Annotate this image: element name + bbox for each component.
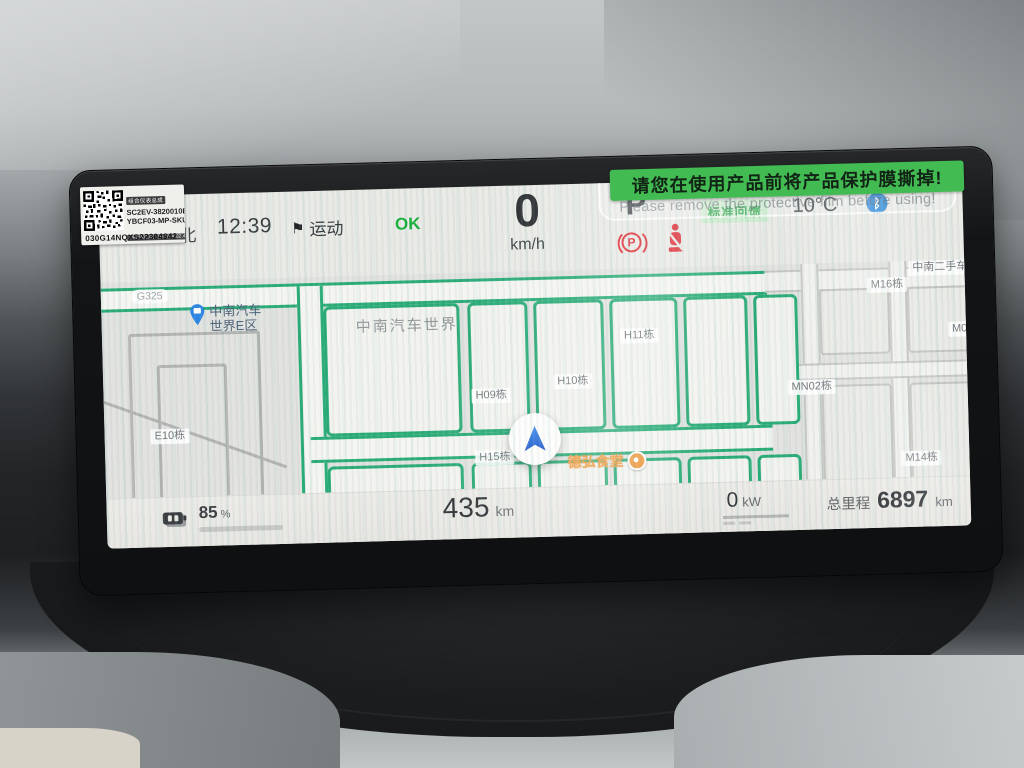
speed-unit: km/h (491, 235, 563, 255)
map-building (909, 381, 970, 481)
film-notice-chinese: 请您在使用产品前将产品保护膜撕掉! (631, 163, 943, 197)
map-building (907, 285, 970, 353)
map-building (819, 287, 891, 355)
map-building (533, 299, 606, 431)
poi-label: 中南汽车 世界E区 (209, 302, 262, 333)
vehicle-position-marker (508, 412, 561, 465)
seat-corner (0, 728, 140, 768)
power-meter-line (723, 514, 789, 519)
bluetooth-icon: ᛒ (866, 192, 888, 214)
map-label: H09栋 (471, 388, 511, 404)
part-label-sticker: 组合仪表总成 SC2EV-3820010B YBCF03-MP-SKU1 HW:… (80, 184, 186, 245)
map-label: E10栋 (150, 428, 189, 444)
map-label: M14栋 (901, 450, 942, 466)
remaining-range: 435 km (442, 491, 514, 525)
instrument-cluster: 北 12:39 ⚑ 运动 OK 0 km/h P P (68, 146, 1003, 597)
poi-canteen: 德弘食堂 (567, 450, 647, 472)
map-label: M16栋 (867, 277, 908, 293)
drive-mode-indicator: ⚑ 运动 (291, 214, 344, 240)
map-label: H10栋 (553, 373, 593, 389)
qr-code (83, 190, 124, 231)
speed-value: 0 (490, 184, 563, 236)
poi-label: 德弘食堂 (567, 451, 624, 473)
map-label: M05栋 (948, 321, 970, 337)
part-code-2: YBCF03-MP-SKU1 (127, 216, 183, 227)
seatbelt-warning-icon (665, 223, 686, 259)
map-building (683, 295, 750, 427)
drive-mode-label: 运动 (309, 214, 344, 240)
system-ok-status: OK (395, 214, 421, 235)
speedometer: 0 km/h (490, 184, 564, 255)
regen-mode-badge: 标准回馈 (700, 199, 769, 224)
map-building (609, 297, 680, 429)
power-meter-tick (723, 522, 735, 525)
outside-temperature: 10°C (792, 194, 837, 218)
parking-brake-warning-icon: P (617, 228, 646, 257)
cluster-display: 北 12:39 ⚑ 运动 OK 0 km/h P P (98, 173, 971, 548)
map-building (753, 294, 801, 425)
windshield-light-area (0, 0, 460, 170)
racing-flag-icon: ⚑ (291, 219, 305, 237)
road-number-badge: G325 (131, 289, 169, 304)
odometer: 总里程 6897 km (826, 485, 953, 515)
map-label: MN02栋 (787, 379, 836, 395)
clock: 12:39 (217, 214, 273, 239)
map-label: 中南二手车市场 (908, 259, 970, 276)
poi-pin-orange-icon (627, 451, 647, 471)
map-building (467, 301, 530, 433)
map-label: H15栋 (475, 450, 515, 466)
part-name: 组合仪表总成 (126, 196, 165, 205)
car-dashboard-photo: 北 12:39 ⚑ 运动 OK 0 km/h P P (0, 0, 1024, 768)
poi-car-world-e-zone: 中南汽车 世界E区 (189, 302, 262, 334)
power-output: 0 kW (726, 488, 761, 513)
map-building (821, 383, 894, 483)
navigation-map: G325 中南汽车 世界E区 中南汽车世界 德弘食堂 E10栋H0 (100, 259, 970, 498)
navigation-arrow-icon (519, 424, 550, 455)
battery-icon (161, 509, 192, 534)
battery-bar (199, 525, 283, 532)
power-meter-tick (739, 521, 751, 524)
poi-pin-blue-icon (189, 304, 206, 325)
battery-percentage: 85 % (198, 502, 230, 523)
map-area-label: 中南汽车世界 (355, 313, 458, 337)
map-label: H11栋 (620, 328, 659, 344)
